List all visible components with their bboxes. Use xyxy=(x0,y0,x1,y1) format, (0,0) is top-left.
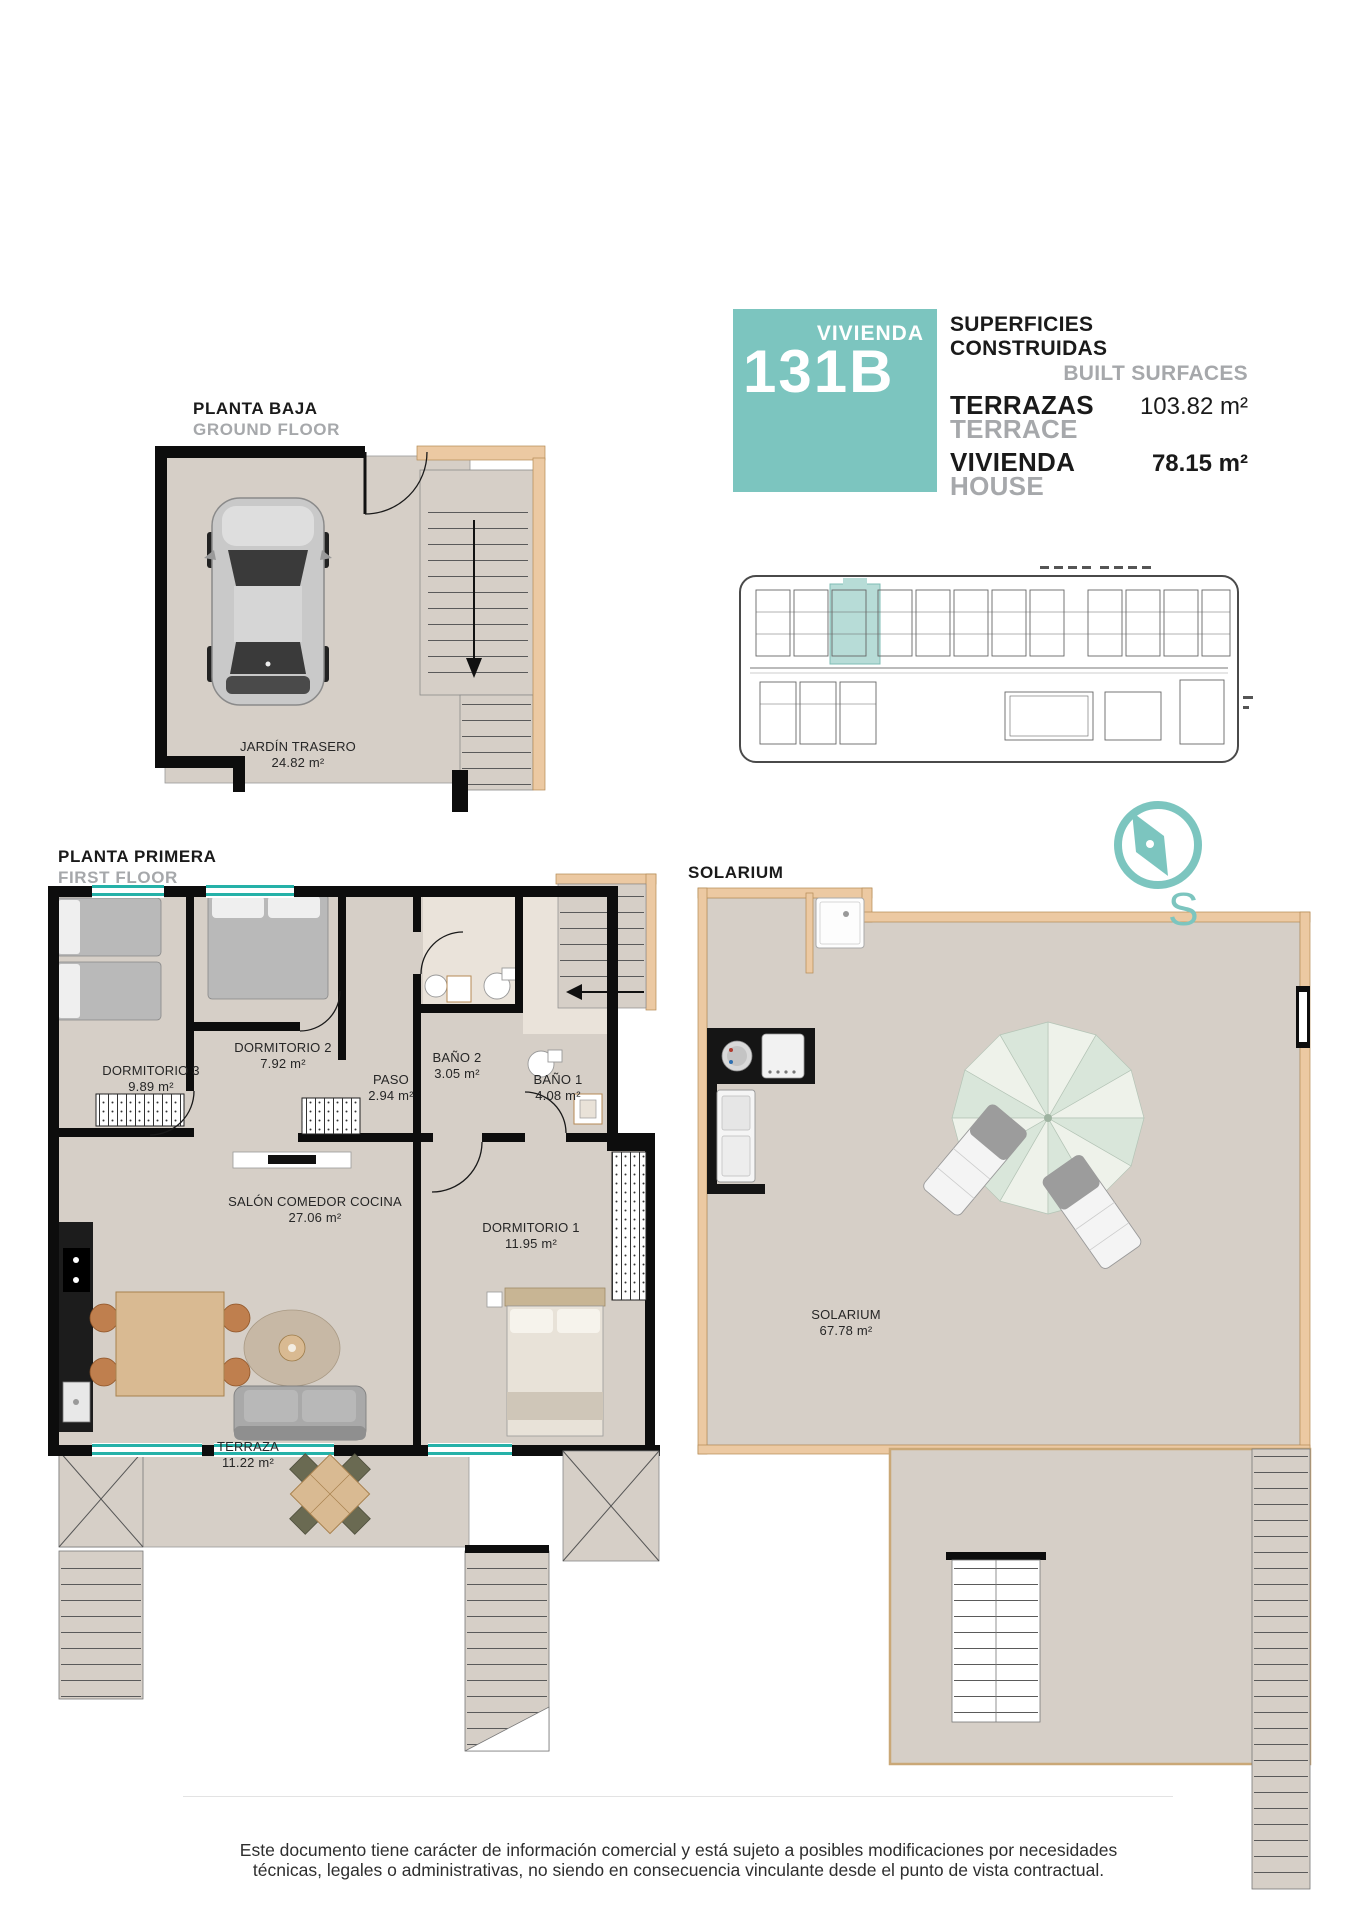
terrace-stairs xyxy=(59,1451,143,1699)
house-surface-row: VIVIENDA HOUSE 78.15 m² xyxy=(950,450,1248,498)
room-label-solarium: SOLARIUM 67.78 m² xyxy=(746,1307,946,1339)
room-name: TERRAZA xyxy=(168,1439,328,1455)
surfaces-title-es: SUPERFICIES CONSTRUIDAS xyxy=(950,313,1248,361)
compass-south-letter: S xyxy=(1168,882,1199,936)
room-area: 67.78 m² xyxy=(746,1323,946,1339)
street-label-marks xyxy=(1040,566,1151,569)
room-name: JARDÍN TRASERO xyxy=(198,739,398,755)
ground-floor-title-en: GROUND FLOOR xyxy=(193,419,340,440)
ground-floor-title: PLANTA BAJA GROUND FLOOR xyxy=(193,398,340,440)
rug-and-side-table xyxy=(244,1310,340,1386)
legal-disclaimer: Este documento tiene carácter de informa… xyxy=(0,1840,1357,1880)
terrace-value: 103.82 m² xyxy=(1140,393,1248,421)
car-illustration xyxy=(204,498,332,705)
room-label-terraza: TERRAZA 11.22 m² xyxy=(168,1439,328,1471)
room-name: BAÑO 1 xyxy=(498,1072,618,1088)
bedroom2-bed xyxy=(208,894,328,999)
first-floor-plan-drawing xyxy=(48,874,674,1751)
ground-floor-title-es: PLANTA BAJA xyxy=(193,398,340,419)
room-label-salon-comedor-cocina: SALÓN COMEDOR COCINA 27.06 m² xyxy=(195,1194,435,1226)
unit-number: 131B xyxy=(743,337,894,406)
room-area: 11.95 m² xyxy=(441,1236,621,1252)
room-area: 7.92 m² xyxy=(193,1056,373,1072)
outdoor-shower xyxy=(816,898,864,948)
highlighted-unit xyxy=(830,584,880,664)
solarium-lower-terrace xyxy=(563,1449,1310,1889)
solarium-title: SOLARIUM xyxy=(688,862,783,883)
room-area: 2.94 m² xyxy=(331,1088,451,1104)
plan-sheet-graphics xyxy=(0,0,1357,1920)
tv-console xyxy=(233,1152,351,1168)
room-name: SALÓN COMEDOR COCINA xyxy=(195,1194,435,1210)
solarium-plan-drawing xyxy=(563,888,1310,1889)
room-area: 11.22 m² xyxy=(168,1455,328,1471)
room-name: DORMITORIO 2 xyxy=(193,1040,373,1056)
disclaimer-line-2: técnicas, legales o administrativas, no … xyxy=(0,1860,1357,1880)
terrace-surface-row: TERRAZAS TERRACE 103.82 m² xyxy=(950,393,1248,441)
sofa xyxy=(234,1386,366,1440)
room-label-bano-1: BAÑO 1 4.08 m² xyxy=(498,1072,618,1104)
room-name: BAÑO 2 xyxy=(397,1050,517,1066)
room-area: 27.06 m² xyxy=(195,1210,435,1226)
disclaimer-line-1: Este documento tiene carácter de informa… xyxy=(0,1840,1357,1860)
first-floor-title-es: PLANTA PRIMERA xyxy=(58,846,217,867)
exterior-stairs-right xyxy=(465,1545,549,1751)
room-area: 24.82 m² xyxy=(198,755,398,771)
room-label-jardin-trasero: JARDÍN TRASERO 24.82 m² xyxy=(198,739,398,771)
room-area: 9.89 m² xyxy=(61,1079,241,1095)
built-surfaces-title: SUPERFICIES CONSTRUIDAS BUILT SURFACES xyxy=(950,313,1248,386)
house-value: 78.15 m² xyxy=(1152,450,1248,478)
kitchen-counter xyxy=(59,1222,93,1432)
compass-icon xyxy=(1118,805,1198,885)
room-label-dormitorio-2: DORMITORIO 2 7.92 m² xyxy=(193,1040,373,1072)
surfaces-title-en: BUILT SURFACES xyxy=(950,362,1248,386)
first-floor-title: PLANTA PRIMERA FIRST FLOOR xyxy=(58,846,217,888)
floor-plan-sheet: VIVIENDA 131B SUPERFICIES CONSTRUIDAS BU… xyxy=(0,0,1357,1920)
room-area: 4.08 m² xyxy=(498,1088,618,1104)
unit-badge: VIVIENDA 131B xyxy=(733,309,937,492)
room-label-dormitorio-1: DORMITORIO 1 11.95 m² xyxy=(441,1220,621,1252)
footer-divider xyxy=(183,1796,1173,1797)
site-plan-keyplan xyxy=(740,566,1253,762)
room-name: DORMITORIO 1 xyxy=(441,1220,621,1236)
solarium-title-text: SOLARIUM xyxy=(688,862,783,883)
first-floor-title-en: FIRST FLOOR xyxy=(58,867,217,888)
room-name: SOLARIUM xyxy=(746,1307,946,1323)
